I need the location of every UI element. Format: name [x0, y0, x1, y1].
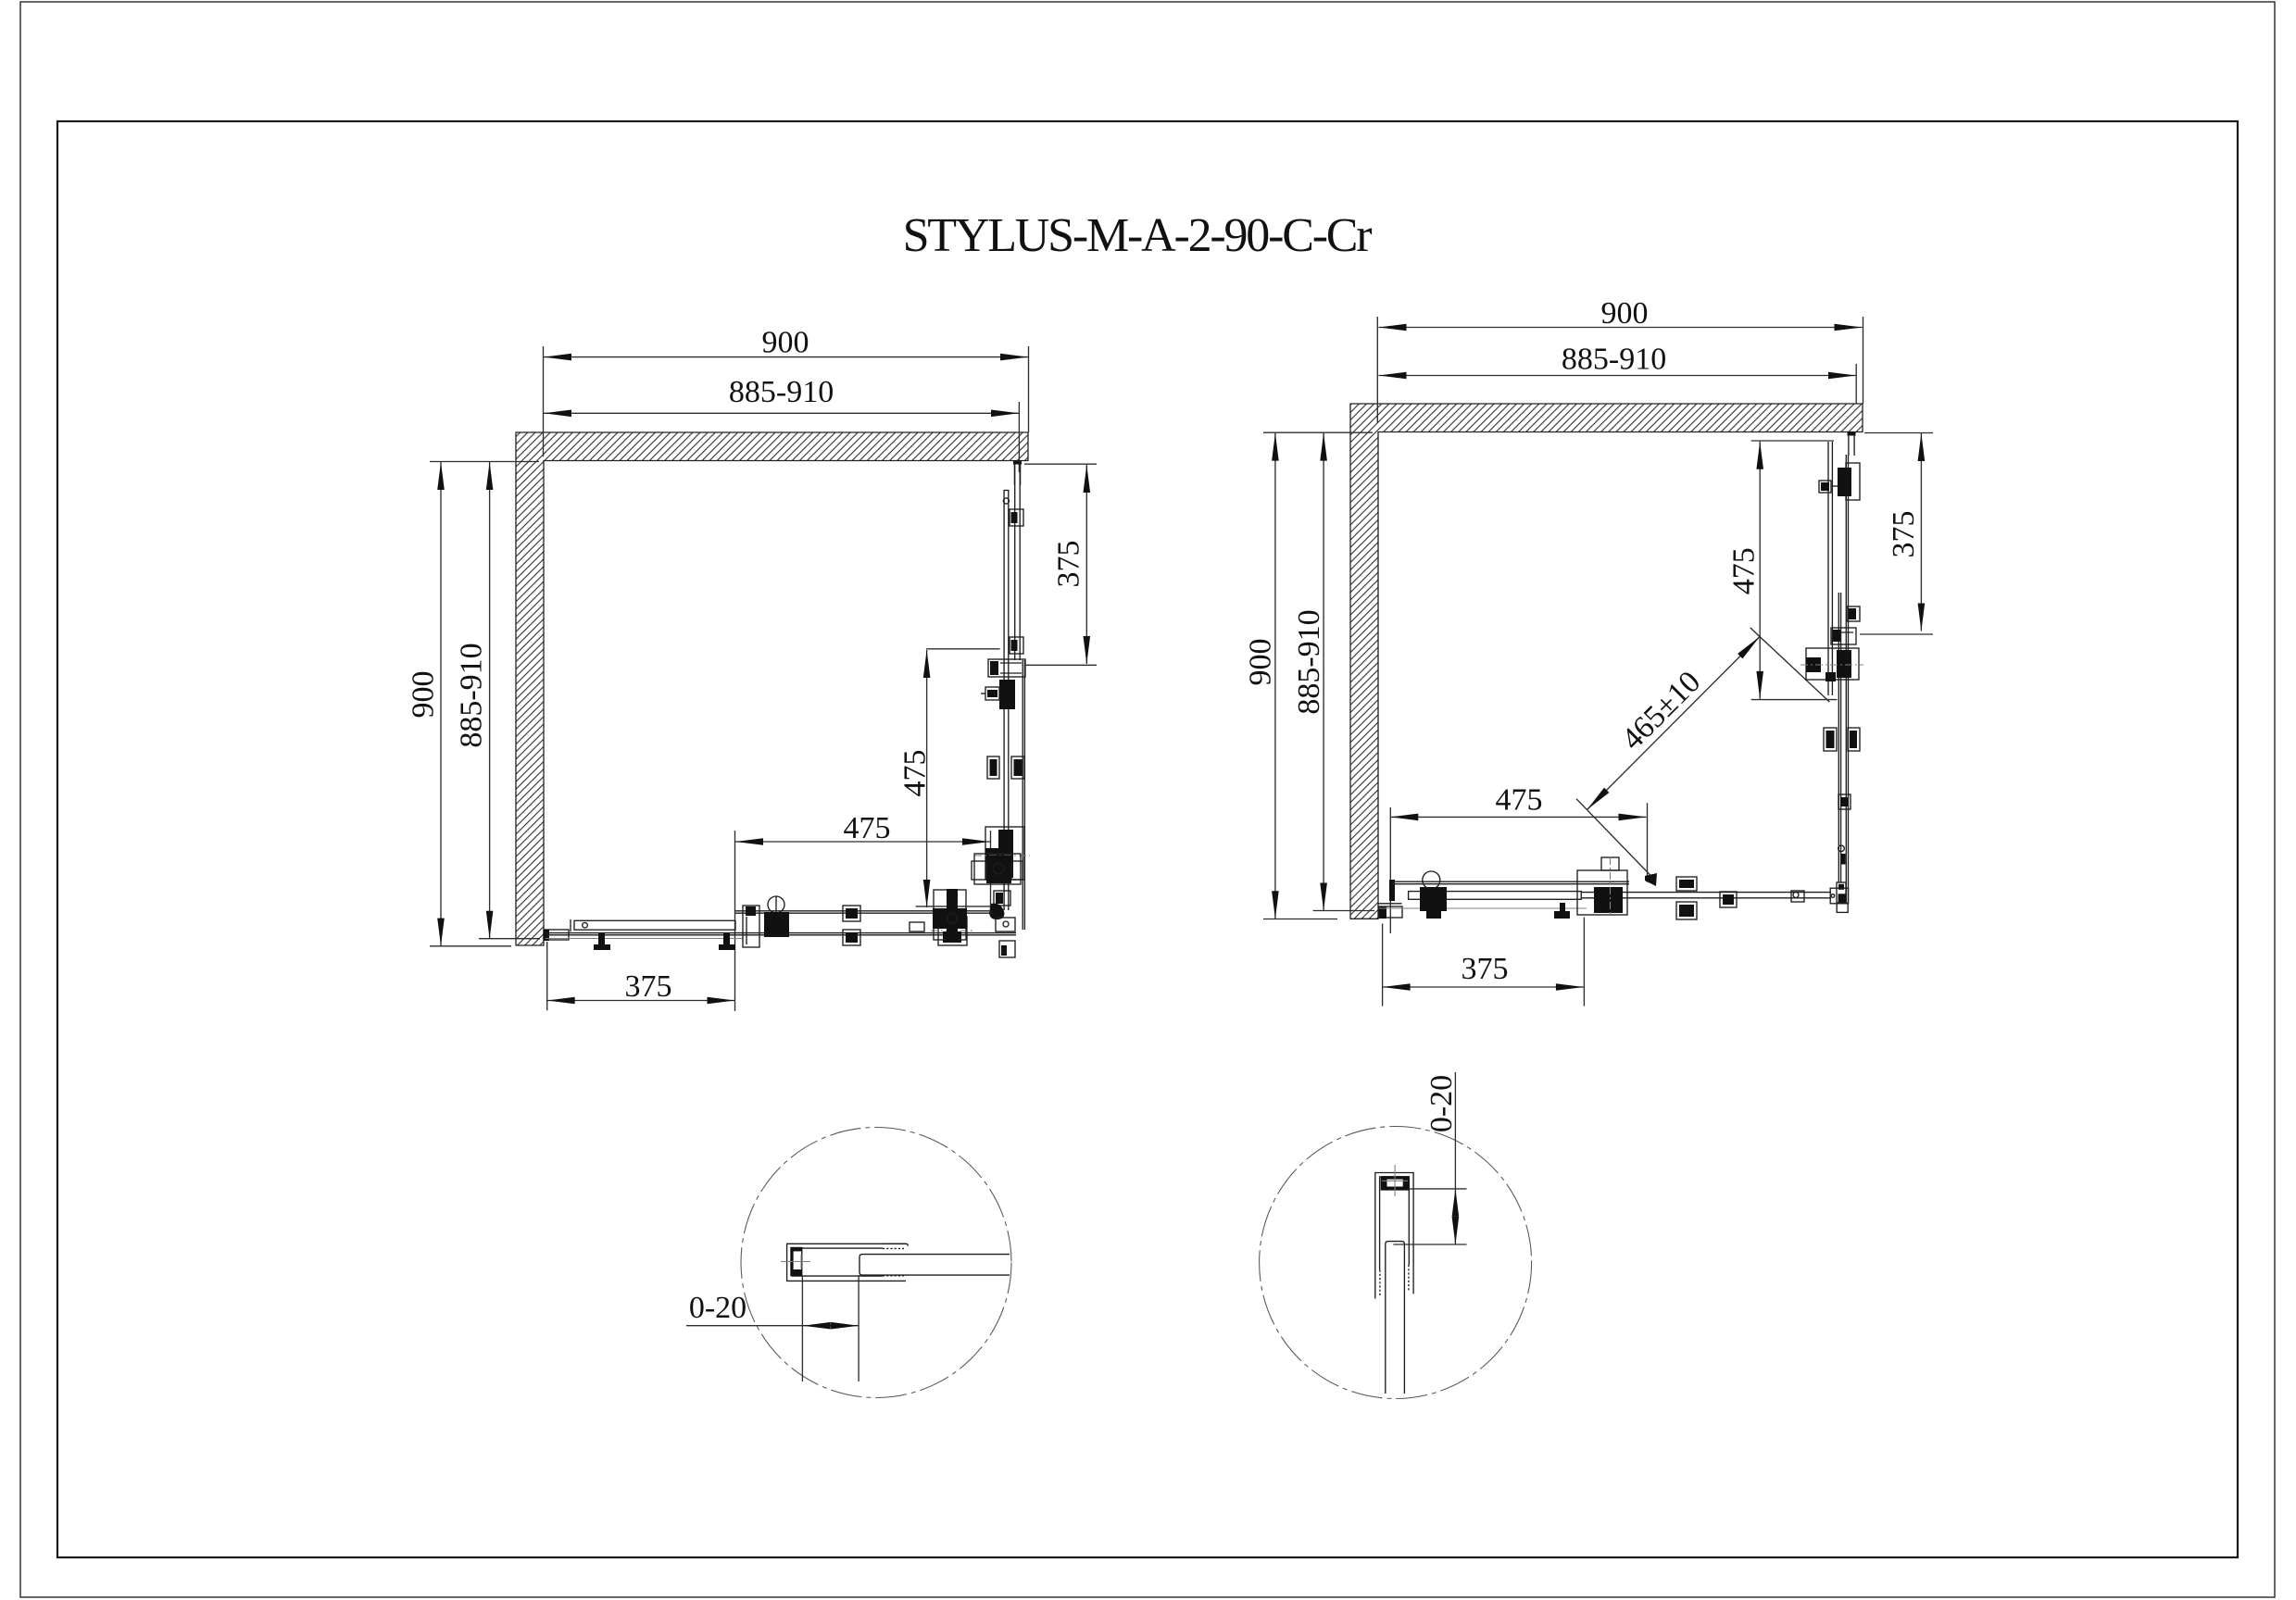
svg-text:475: 475	[844, 811, 891, 845]
svg-text:0-20: 0-20	[1424, 1075, 1459, 1132]
svg-text:475: 475	[1496, 783, 1543, 818]
svg-text:885-910: 885-910	[1562, 343, 1666, 377]
svg-text:475: 475	[898, 750, 933, 797]
svg-text:0-20: 0-20	[689, 1291, 747, 1325]
svg-text:900: 900	[407, 671, 441, 719]
svg-text:885-910: 885-910	[1292, 609, 1326, 714]
svg-text:375: 375	[1462, 952, 1509, 986]
svg-text:STYLUS-M-A-2-90-C-Cr: STYLUS-M-A-2-90-C-Cr	[903, 209, 1373, 262]
svg-text:900: 900	[762, 326, 809, 360]
svg-text:375: 375	[625, 969, 672, 1004]
svg-text:885-910: 885-910	[729, 375, 834, 409]
svg-text:475: 475	[1727, 547, 1762, 594]
svg-text:375: 375	[1887, 511, 1921, 558]
svg-text:885-910: 885-910	[455, 643, 489, 747]
svg-text:900: 900	[1244, 639, 1278, 686]
svg-text:375: 375	[1052, 541, 1086, 588]
svg-text:900: 900	[1601, 296, 1649, 331]
